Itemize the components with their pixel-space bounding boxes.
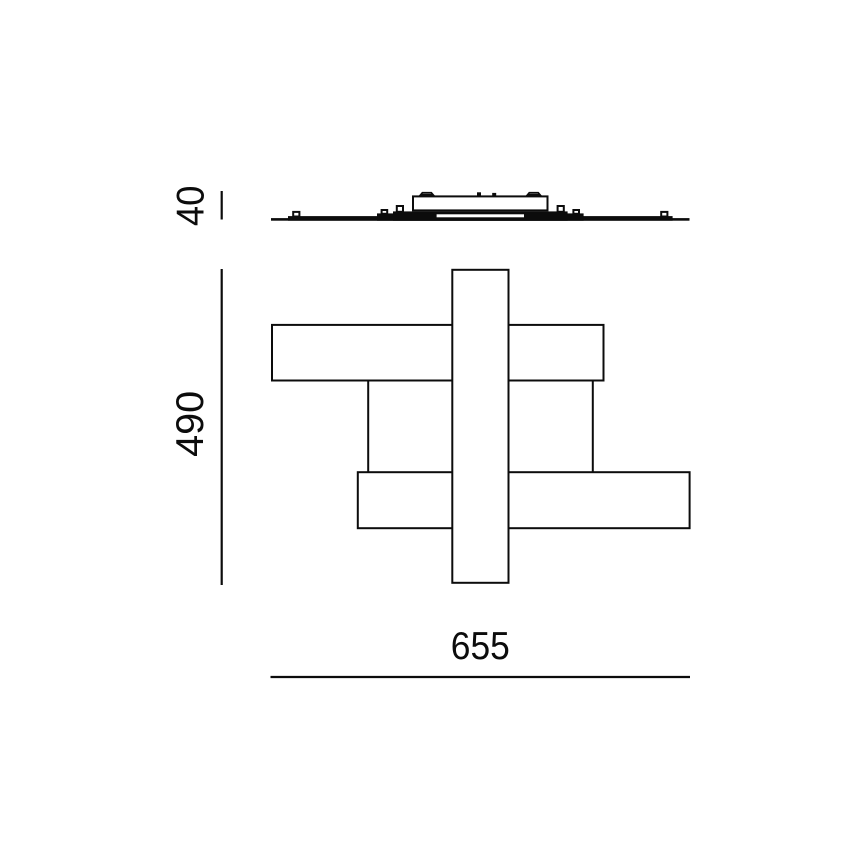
svg-text:655: 655 bbox=[451, 625, 510, 668]
svg-text:40: 40 bbox=[170, 186, 213, 227]
svg-text:490: 490 bbox=[169, 391, 212, 457]
